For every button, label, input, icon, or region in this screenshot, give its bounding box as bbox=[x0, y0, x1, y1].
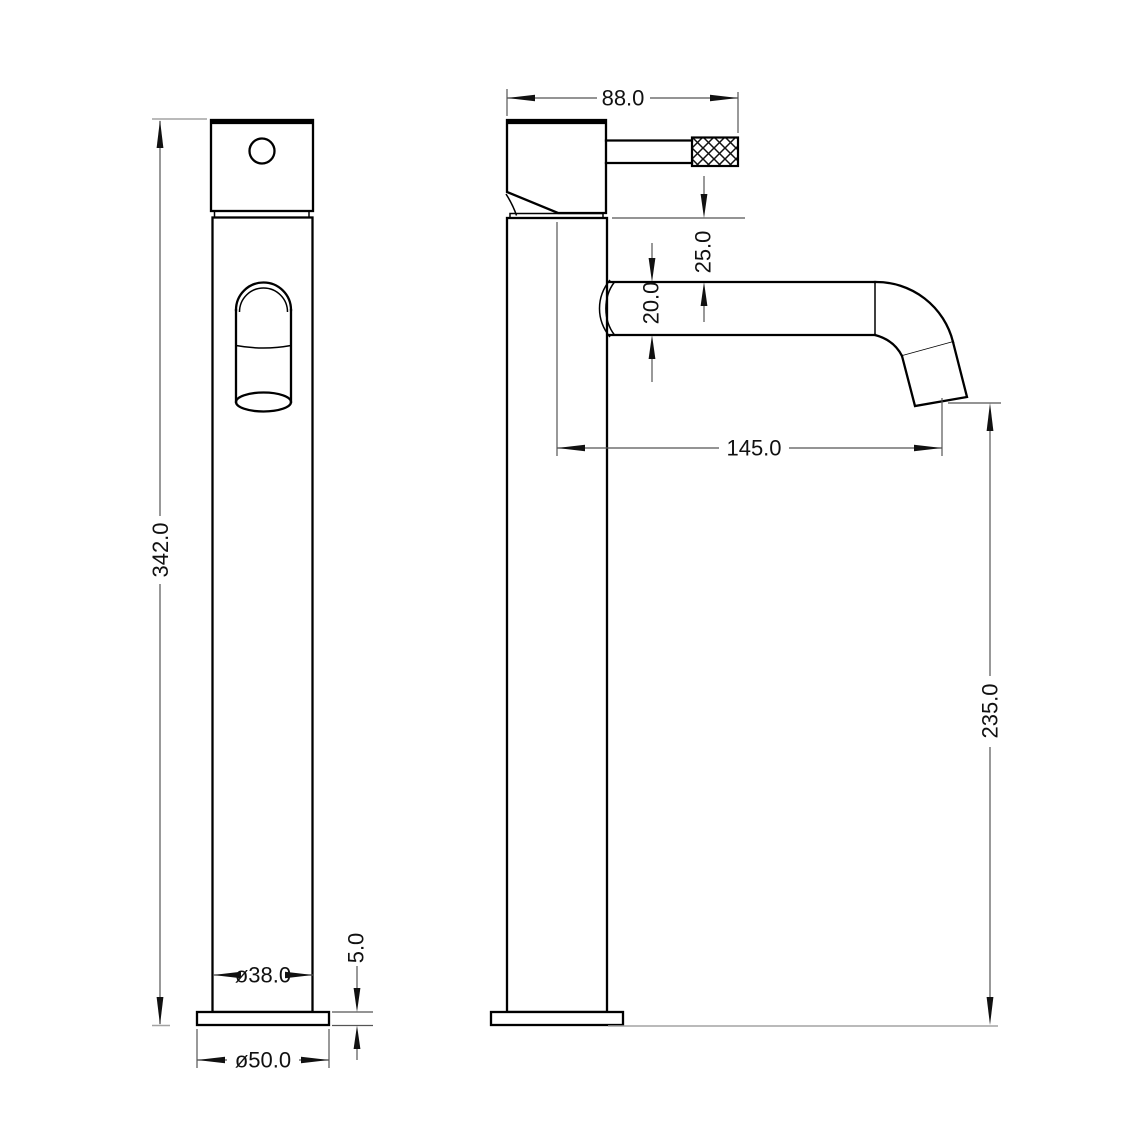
dim-spout-diameter-label: 20.0 bbox=[639, 282, 664, 325]
dim-overall-height: 342.0 bbox=[148, 119, 207, 1026]
arrowhead-up bbox=[649, 335, 656, 359]
side-head-outline bbox=[507, 120, 606, 213]
arrowhead-left bbox=[197, 1057, 225, 1064]
dim-spout-diameter: 20.0 bbox=[639, 243, 664, 382]
arrowhead-down bbox=[987, 997, 994, 1025]
dim-overall-height-label: 342.0 bbox=[148, 522, 173, 577]
front-body-outline bbox=[213, 218, 313, 1013]
arrowhead-up bbox=[987, 403, 994, 431]
dim-spout-reach-label: 145.0 bbox=[726, 436, 781, 461]
arrowhead-up bbox=[157, 120, 164, 148]
dim-head-width-label: 88.0 bbox=[602, 86, 645, 111]
dim-base-diameter: ø50.0 bbox=[197, 1029, 329, 1073]
dim-spout-reach: 145.0 bbox=[557, 222, 942, 461]
front-head-outline bbox=[211, 120, 313, 211]
dim-head-to-spout: 25.0 bbox=[612, 176, 745, 322]
arrowhead-right bbox=[301, 1057, 329, 1064]
arrowhead-down bbox=[354, 988, 361, 1012]
side-view bbox=[491, 120, 967, 1025]
arrowhead-left bbox=[507, 95, 535, 102]
dim-outlet-height: 235.0 bbox=[608, 403, 1003, 1026]
dim-base-diameter-label: ø50.0 bbox=[235, 1048, 291, 1073]
lever-knurled-grip bbox=[692, 138, 738, 167]
arrowhead-down bbox=[157, 997, 164, 1025]
side-head-cut-arc bbox=[506, 194, 517, 216]
arrowhead-right bbox=[914, 445, 942, 452]
arrowhead-up bbox=[354, 1026, 361, 1050]
dim-base-thickness: 5.0 bbox=[332, 933, 373, 1060]
arrowhead-up bbox=[701, 282, 708, 306]
spout-bend-inner-arc bbox=[875, 335, 902, 356]
side-base-plate bbox=[491, 1012, 623, 1025]
technical-drawing-canvas: 342.0 ø38.0 ø50.0 5.0 88.0 bbox=[0, 0, 1138, 1129]
front-view bbox=[197, 120, 329, 1025]
spout-tip-outline bbox=[902, 342, 967, 406]
spout-bend-outer-arc bbox=[875, 282, 953, 342]
dim-body-diameter-label: ø38.0 bbox=[235, 963, 291, 988]
dim-outlet-height-label: 235.0 bbox=[978, 683, 1003, 738]
faucet-technical-drawing: 342.0 ø38.0 ø50.0 5.0 88.0 bbox=[0, 0, 1138, 1129]
arrowhead-right bbox=[710, 95, 738, 102]
arrowhead-down bbox=[701, 194, 708, 218]
dim-base-thickness-label: 5.0 bbox=[344, 933, 369, 964]
front-base-plate bbox=[197, 1012, 329, 1025]
side-lever bbox=[606, 138, 738, 167]
arrowhead-down bbox=[649, 258, 656, 282]
dim-head-to-spout-label: 25.0 bbox=[691, 231, 716, 274]
